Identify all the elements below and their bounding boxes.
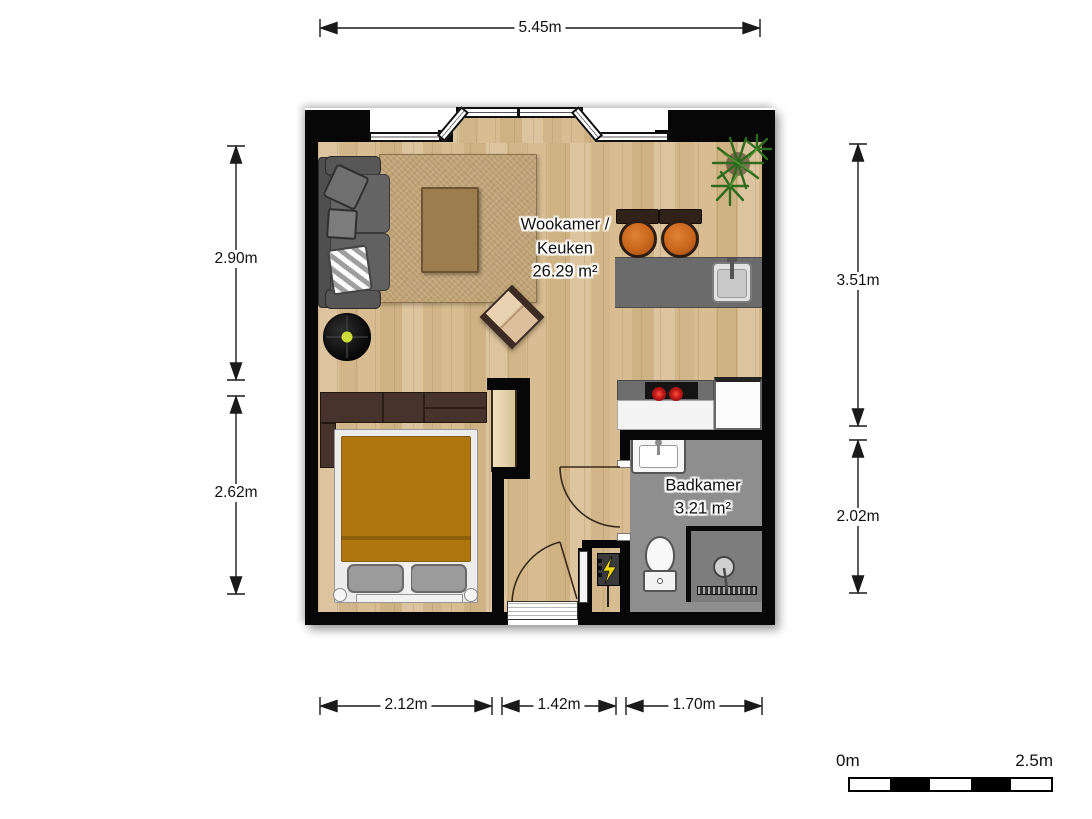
bed-duvet-fold: [341, 536, 471, 540]
robot-vacuum: [323, 313, 371, 361]
wall-bathroom-top: [620, 430, 762, 440]
stove-counter: [617, 400, 714, 430]
sofa-pillow: [326, 208, 358, 240]
kitchen-faucet-pipe: [730, 260, 734, 279]
bay-window-mullion: [517, 107, 520, 118]
bed-pillow: [347, 564, 404, 593]
window-top-left: [369, 132, 441, 142]
scale-bar-end-label: 2.5m: [1015, 751, 1053, 771]
scale-bar-segment: [971, 779, 1011, 790]
wall-right: [762, 110, 775, 625]
room-label-bathroom-name: Badkamer: [665, 477, 740, 496]
bed-pillow-divider: [404, 562, 411, 596]
wall-top-right: [668, 110, 775, 142]
scale-bar-segment: [890, 779, 930, 790]
room-label-bathroom-area: 3.21 m²: [675, 500, 731, 519]
bed-pillow: [410, 564, 467, 593]
kitchen-cabinet: [714, 377, 762, 430]
cooktop-burner: [669, 387, 683, 401]
shower-drain: [697, 586, 757, 595]
wardrobe-seam: [382, 393, 384, 422]
bathroom-door-jamb: [617, 533, 631, 541]
toilet-bowl: [645, 536, 675, 574]
room-label-livingroom-area: 26.29 m²: [532, 263, 597, 282]
bed-duvet: [341, 436, 471, 562]
wall-bedroom-step: [492, 467, 530, 479]
cooktop-burner: [652, 387, 666, 401]
dimension-label-bottom-center: 1.42m: [533, 696, 584, 714]
dimension-label-right-upper: 3.51m: [832, 272, 883, 290]
wall-meter-top: [582, 540, 622, 548]
shower-head: [713, 556, 735, 578]
wall-bottom-left: [305, 612, 508, 625]
floorplan-canvas: Wookamer / Keuken 26.29 m² Badkamer 3.21…: [0, 0, 1092, 819]
dimension-label-bottom-left: 2.12m: [380, 696, 431, 714]
window-top-right: [595, 132, 669, 142]
dimension-label-left-upper: 2.90m: [210, 250, 261, 268]
sofa-pillow-striped: [327, 244, 373, 295]
toilet-flush-button: [657, 578, 663, 584]
dimension-label-bottom-right: 1.70m: [668, 696, 719, 714]
bed-post: [464, 588, 478, 602]
dimension-label-left-lower: 2.62m: [210, 484, 261, 502]
bed-footboard: [356, 594, 463, 603]
wall-bathroom-left-lower: [620, 541, 630, 612]
room-label-livingroom-line1: Wookamer /: [521, 216, 610, 235]
bar-stool-seat: [619, 220, 657, 258]
scale-bar-segment: [1011, 779, 1051, 790]
bar-stool-seat: [661, 220, 699, 258]
wall-bedroom-upper: [517, 390, 530, 478]
wall-bedroom-lower: [492, 479, 504, 612]
bay-window-center: [462, 107, 578, 118]
meter-closet-door: [579, 551, 588, 603]
bedside-cabinet: [491, 387, 517, 472]
wall-bedroom-cap: [487, 378, 530, 390]
bathroom-door-jamb: [617, 460, 631, 468]
dimension-label-right-lower: 2.02m: [832, 508, 883, 526]
entrance-door-threshold: [507, 601, 578, 620]
scale-bar-start-label: 0m: [836, 751, 860, 771]
wall-left: [305, 110, 318, 625]
washbasin-faucet-stem: [657, 442, 660, 455]
scale-bar-segment: [850, 779, 890, 790]
room-label-livingroom-line2: Keuken: [537, 240, 593, 259]
bed-post: [333, 588, 347, 602]
wardrobe-seam: [425, 407, 487, 409]
scale-bar: [848, 777, 1053, 792]
coffee-table: [421, 187, 479, 273]
dimension-label-top: 5.45m: [514, 19, 565, 37]
wall-bottom-right: [578, 612, 775, 625]
electrical-meter-panel: [597, 553, 620, 586]
scale-bar-segment: [930, 779, 970, 790]
wall-bathroom-left-upper: [620, 430, 630, 460]
wall-top-left: [305, 110, 370, 142]
plant-pot: [726, 152, 750, 176]
